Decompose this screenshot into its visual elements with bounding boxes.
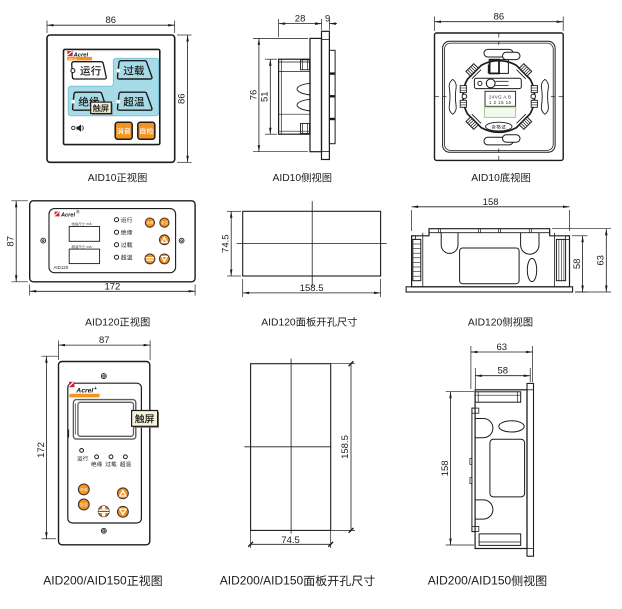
svg-text:86: 86 — [106, 15, 117, 26]
svg-text:AID200/AID150: AID200/AID150 — [43, 574, 127, 588]
svg-text:58: 58 — [572, 259, 583, 270]
svg-text:28: 28 — [295, 14, 306, 25]
svg-text:63: 63 — [596, 255, 607, 266]
svg-text:AID120: AID120 — [261, 317, 296, 328]
svg-text:AID10: AID10 — [68, 57, 77, 61]
svg-text:51: 51 — [260, 91, 271, 102]
svg-text:Acrel: Acrel — [75, 388, 93, 395]
svg-text:172: 172 — [104, 281, 120, 292]
svg-text:58: 58 — [498, 366, 509, 377]
svg-text:Acrel: Acrel — [60, 213, 75, 219]
svg-text:AID200/AID150: AID200/AID150 — [220, 574, 304, 588]
svg-text:AID10: AID10 — [273, 173, 302, 184]
svg-text:158: 158 — [483, 197, 499, 208]
svg-text:AID200/AID150: AID200/AID150 — [428, 574, 512, 588]
svg-text:74.5: 74.5 — [281, 535, 300, 546]
svg-text:AID120: AID120 — [468, 317, 503, 328]
svg-text:63: 63 — [497, 342, 508, 353]
svg-text:172: 172 — [36, 442, 47, 458]
svg-text:AID10: AID10 — [88, 173, 117, 184]
svg-text:+: + — [94, 386, 97, 392]
svg-text:158.5: 158.5 — [340, 435, 351, 459]
svg-text:158: 158 — [440, 460, 451, 476]
svg-text:24VG A B: 24VG A B — [489, 94, 511, 99]
svg-text:1 2 15 16: 1 2 15 16 — [489, 100, 512, 105]
svg-text:76: 76 — [248, 90, 259, 101]
svg-text:86: 86 — [177, 93, 188, 104]
svg-text:86: 86 — [494, 12, 505, 23]
svg-text:74.5: 74.5 — [221, 234, 232, 253]
svg-text:AID120: AID120 — [85, 317, 120, 328]
svg-text:87: 87 — [99, 335, 110, 346]
svg-text:9: 9 — [325, 14, 330, 25]
svg-text:mA: mA — [87, 222, 93, 226]
svg-text:87: 87 — [6, 236, 17, 247]
svg-text:AID10: AID10 — [471, 173, 500, 184]
svg-text:mA: mA — [87, 245, 93, 249]
svg-text:AID120: AID120 — [54, 265, 69, 270]
svg-text:158.5: 158.5 — [300, 283, 324, 294]
